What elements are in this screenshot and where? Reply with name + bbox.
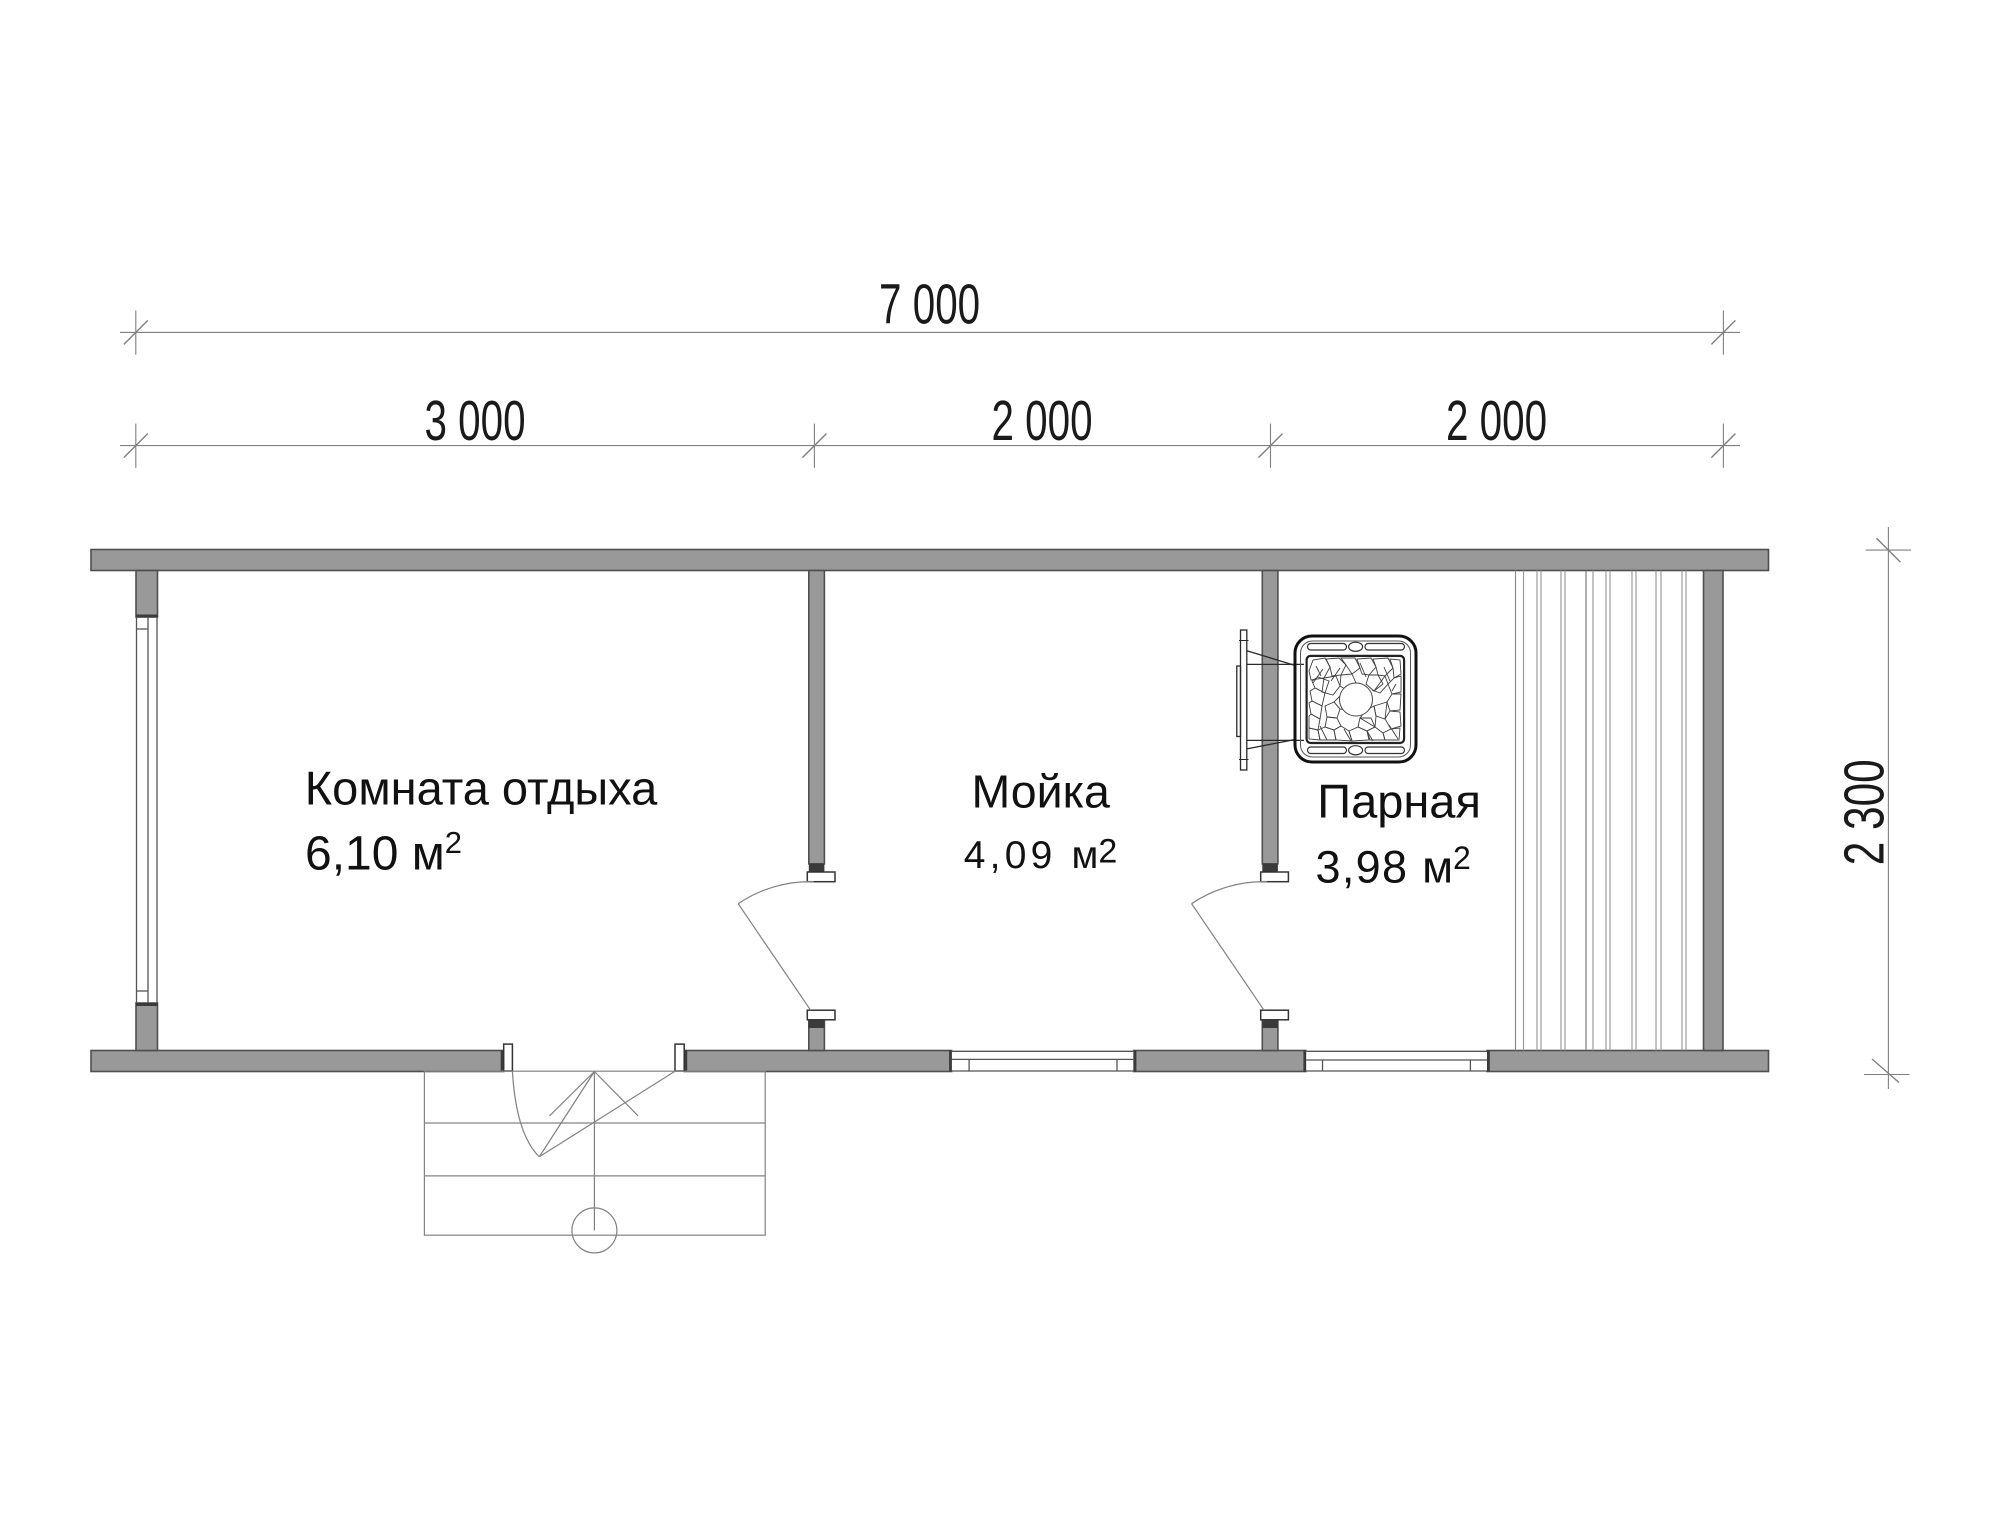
svg-text:Парная: Парная <box>1317 775 1481 828</box>
svg-text:7 000: 7 000 <box>879 274 980 336</box>
svg-text:6,10 м2: 6,10 м2 <box>305 825 462 881</box>
svg-text:2 000: 2 000 <box>991 391 1092 453</box>
svg-text:4,09 м2: 4,09 м2 <box>964 832 1122 877</box>
svg-text:Мойка: Мойка <box>972 766 1110 818</box>
svg-text:3 000: 3 000 <box>424 391 525 453</box>
svg-text:2 300: 2 300 <box>1833 759 1896 865</box>
svg-text:2 000: 2 000 <box>1446 391 1547 453</box>
svg-text:Комната отдыха: Комната отдыха <box>305 762 658 815</box>
svg-text:3,98 м2: 3,98 м2 <box>1316 840 1473 893</box>
